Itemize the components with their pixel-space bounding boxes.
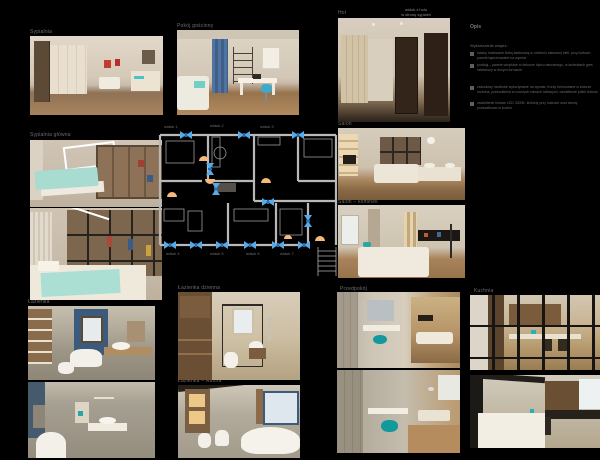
decor-shape: [437, 232, 441, 237]
decor-shape: [147, 175, 152, 182]
led-strip-shape: [94, 397, 114, 399]
camera-marker-icon: [238, 131, 250, 139]
legend-item-text: zabudowy meblowe wykonywane na wymiar, f…: [477, 85, 598, 94]
legend-bullet-icon: [470, 52, 474, 56]
render-hallway-2: [337, 370, 460, 453]
decor-shape: [272, 83, 274, 95]
render-bathroom-2: [178, 292, 300, 380]
photo-label-master-bedroom: Sypialnia główna: [30, 132, 71, 138]
photo-label-bathroom-2: Łazienka dzienna: [178, 285, 220, 291]
legend-item: zabudowy meblowe wykonywane na wymiar, f…: [470, 85, 598, 94]
pendant-lamp-shape: [427, 137, 435, 144]
render-kitchen-2: [470, 375, 600, 448]
door-arc-icon: [167, 192, 177, 197]
wardrobe-shape: [50, 45, 87, 94]
camera-marker-icon: [244, 241, 256, 249]
window-shape: [81, 316, 103, 342]
plan-view-label: widok 6: [246, 251, 260, 256]
mirror-shape: [367, 300, 394, 321]
camera-marker-icon: [262, 198, 274, 206]
render-bathroom-1: [28, 306, 155, 380]
render-living-1: [338, 128, 465, 200]
pillow-shape: [38, 261, 59, 270]
photo-label-bedroom: Sypialnia: [30, 29, 52, 35]
sofa-shape: [416, 332, 453, 344]
decor-shape: [256, 389, 263, 424]
door-arc-icon: [261, 178, 271, 183]
living-view-shape: [411, 297, 460, 364]
render-bedroom: [30, 36, 163, 115]
bathtub-shape: [70, 349, 102, 367]
render-master-bedroom-2: [30, 208, 162, 300]
legend-item-text: ściany malowane farbą lateksową w odcien…: [477, 51, 598, 60]
cabinet-shape: [545, 381, 579, 410]
fireplace-shape: [418, 315, 433, 321]
window-shape: [263, 391, 299, 426]
light-panel-shape: [404, 212, 417, 250]
decor-shape: [177, 30, 299, 39]
render-living-2: [338, 205, 465, 278]
render-bathroom-1b: [28, 382, 155, 458]
wardrobe-shape: [337, 370, 363, 453]
presentation-board: Sypialnia Pokój gościnny Hol widok z hol…: [0, 0, 600, 460]
decor-shape: [138, 160, 143, 167]
door-shape: [395, 37, 418, 114]
window-shape: [341, 215, 360, 245]
plan-note: widok z holu w stronę sypialni: [383, 7, 449, 17]
wardrobe-shape: [341, 35, 368, 104]
legend-bullet-icon: [470, 64, 474, 68]
chair-shape: [445, 163, 455, 169]
camera-marker-icon: [298, 241, 310, 249]
dining-table-shape: [418, 410, 450, 422]
bidet-shape: [198, 433, 211, 448]
window-shape: [438, 375, 460, 400]
camera-marker-icon: [272, 241, 284, 249]
decor-shape: [265, 92, 267, 102]
door-arc-icon: [315, 236, 325, 241]
floor-lamp-shape: [450, 224, 452, 258]
photo-label-kitchen: Kuchnia: [474, 288, 493, 294]
toilet-shape: [224, 352, 237, 368]
decor-shape: [530, 409, 535, 413]
frame-beam-shape: [480, 375, 545, 383]
towel-rail-shape: [268, 317, 270, 342]
toilet-shape: [36, 432, 66, 458]
decor-shape: [240, 83, 242, 95]
bed-blanket-shape: [40, 268, 120, 296]
console-shape: [363, 325, 400, 330]
counter-shape: [545, 410, 600, 419]
decor-shape: [107, 236, 112, 247]
camera-marker-icon: [304, 215, 312, 227]
shelf-shape: [178, 327, 212, 366]
cabinet-shape: [180, 296, 209, 319]
photo-label-guest-room: Pokój gościnny: [177, 23, 213, 29]
cabinet-shape: [249, 348, 266, 359]
dining-table-shape: [418, 167, 461, 181]
toilet-shape: [58, 362, 73, 374]
floor-shape: [408, 425, 460, 453]
floor-plan: widok 1 widok 2 widok 3 widok 4 widok 5 …: [158, 123, 340, 283]
glass-wardrobe-shape: [96, 145, 162, 199]
pillow-shape: [194, 81, 205, 88]
cabinet-shape: [127, 321, 145, 342]
camera-marker-icon: [216, 241, 228, 249]
lit-niche-shape: [189, 411, 205, 424]
legend-bullet-icon: [470, 86, 474, 90]
plan-view-label: widok 1: [164, 124, 178, 129]
mirror-shape: [142, 50, 155, 64]
bathtub-shape: [241, 427, 300, 453]
window-shape: [232, 308, 254, 335]
vanity-shape: [88, 423, 127, 431]
legend-item: oświetlenie liniowe LED 3000K, kinkiety …: [470, 101, 598, 110]
cabinet-shape: [33, 405, 44, 428]
legend: Opis Wykończenie wnętrz: ściany malowane…: [470, 24, 598, 111]
pouf-shape: [373, 335, 388, 345]
pendant-lamp-shape: [428, 387, 434, 391]
plan-walls: [160, 135, 336, 245]
chair-shape: [424, 163, 434, 169]
shelf-shape: [28, 309, 52, 364]
floor-plan-svg: [158, 123, 340, 283]
lit-niche-shape: [189, 394, 205, 407]
plan-view-label: widok 7: [280, 251, 294, 256]
render-bathroom-3: [178, 385, 300, 458]
toilet-shape: [215, 430, 230, 446]
photo-label-hall: Hol: [338, 10, 346, 16]
basin-shape: [99, 417, 116, 424]
chair-shape: [261, 84, 272, 93]
decor-shape: [424, 233, 428, 237]
sofa-shape: [374, 164, 420, 183]
console-shape: [368, 408, 409, 414]
sofa-shape: [358, 247, 429, 276]
decor-shape: [146, 245, 151, 256]
camera-marker-icon: [190, 241, 202, 249]
artwork-shape: [104, 60, 111, 69]
door-arc-icon: [284, 235, 292, 239]
camera-marker-icon: [180, 131, 192, 139]
legend-item-text: oświetlenie liniowe LED 3000K, kinkiety …: [477, 101, 598, 110]
plan-view-label: widok 3: [260, 124, 274, 129]
glass-partition-shape: [380, 137, 421, 166]
spotlight-shape: [400, 22, 403, 25]
plan-note-line-2: w stronę sypialni: [383, 12, 449, 17]
door-shape: [424, 33, 448, 116]
render-master-bedroom-1: [30, 140, 162, 207]
glass-partition-shape: [470, 295, 600, 370]
legend-item-text: podłogi – panele winylowe w dekorze dębu…: [477, 63, 598, 72]
vanity-shape: [104, 347, 152, 354]
render-hallway-1: [337, 292, 460, 368]
poster-shape: [262, 47, 280, 69]
decor-shape: [78, 411, 83, 416]
pouf-shape: [381, 420, 398, 432]
legend-item: podłogi – panele winylowe w dekorze dębu…: [470, 63, 598, 72]
bed-shape: [99, 77, 120, 89]
camera-marker-icon: [164, 241, 176, 249]
legend-bullet-icon: [470, 102, 474, 106]
vanity-shape: [131, 71, 160, 92]
decor-shape: [134, 76, 145, 79]
legend-title: Opis: [470, 24, 598, 30]
plan-view-label: widok 4: [166, 251, 180, 256]
spotlight-shape: [372, 23, 375, 26]
fireplace-shape: [343, 155, 356, 164]
plan-view-label: widok 5: [210, 251, 224, 256]
artwork-shape: [115, 59, 120, 66]
island-shape: [478, 413, 546, 448]
plan-view-label: widok 2: [210, 123, 224, 128]
render-hall: [338, 18, 450, 122]
decor-shape: [368, 39, 393, 101]
legend-item: ściany malowane farbą lateksową w odcien…: [470, 51, 598, 60]
curtain-shape: [212, 39, 228, 93]
laptop-shape: [253, 74, 262, 79]
render-kitchen-1: [470, 295, 600, 370]
basin-shape: [112, 342, 130, 349]
legend-heading: Wykończenie wnętrz:: [470, 43, 598, 48]
wardrobe-shape: [337, 292, 358, 368]
plan-stairs: [318, 247, 336, 276]
door-shape: [34, 41, 50, 103]
decor-shape: [128, 239, 133, 250]
window-shape: [579, 379, 600, 408]
render-guest-room: [177, 30, 299, 115]
